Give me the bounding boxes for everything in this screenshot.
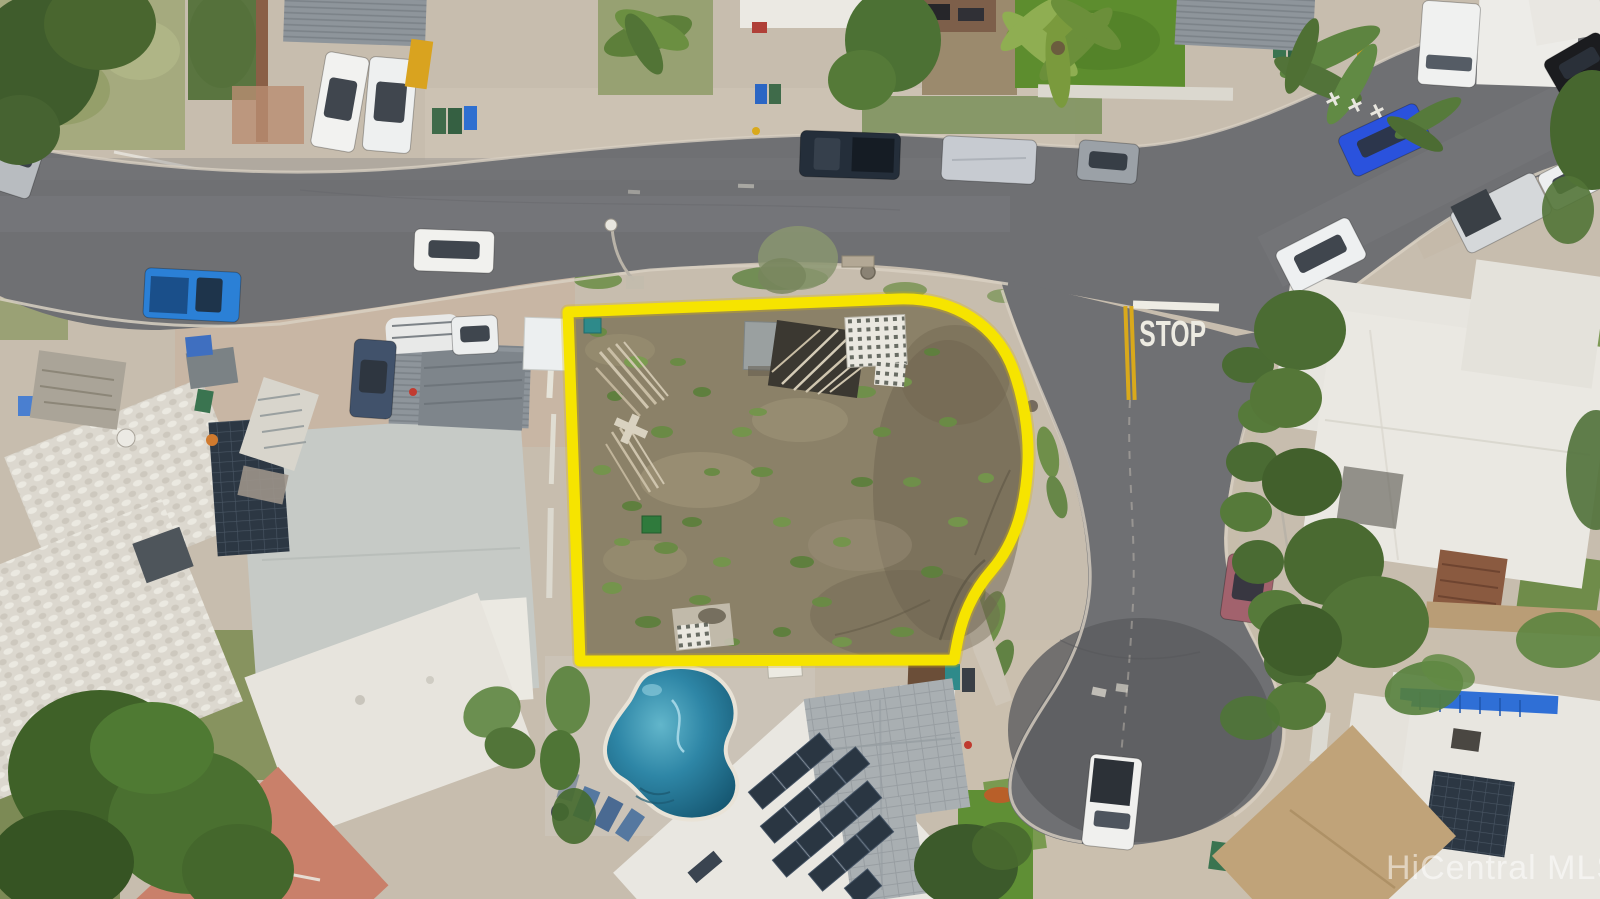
bare-dirt xyxy=(232,86,304,144)
truck-bed xyxy=(851,137,894,172)
weed xyxy=(654,542,678,554)
tree xyxy=(1542,176,1594,244)
weed xyxy=(602,582,622,594)
dirt-patch xyxy=(640,452,760,508)
cooler-box xyxy=(584,318,601,333)
suv-white xyxy=(451,315,499,355)
fire-hydrant xyxy=(964,741,972,749)
block-lattice xyxy=(845,314,908,367)
boat-canopy xyxy=(418,347,526,430)
weed xyxy=(924,348,940,356)
pavement-mark xyxy=(628,190,640,195)
dirt-patch xyxy=(808,519,912,571)
tree xyxy=(972,822,1032,870)
tree xyxy=(1250,368,1322,428)
truck-bed xyxy=(149,276,189,314)
suv-blue xyxy=(349,339,396,420)
storm-grate xyxy=(842,256,874,267)
weed xyxy=(614,538,630,546)
hedge xyxy=(1232,540,1284,584)
palm-trunk xyxy=(1051,41,1065,55)
weed xyxy=(948,517,968,527)
tree xyxy=(1220,696,1280,740)
aerial-photo: STOP HiCentral MLS xyxy=(0,0,1600,899)
trash-bin xyxy=(769,84,781,104)
streetlight-base xyxy=(626,276,644,289)
palm xyxy=(552,788,596,844)
metal-roof xyxy=(1175,0,1316,52)
white-roof xyxy=(1461,259,1600,388)
trash-bin xyxy=(448,108,462,134)
pallet-stack xyxy=(30,350,127,430)
trash-bin xyxy=(755,84,767,104)
vacant-lot xyxy=(546,299,1028,661)
roof-vent xyxy=(1451,728,1482,752)
truck-cab-glass xyxy=(195,277,223,312)
palm-frond xyxy=(1516,612,1600,668)
weed xyxy=(890,627,914,637)
fire-hydrant xyxy=(752,127,760,135)
streetlight-head xyxy=(605,219,617,231)
weed xyxy=(773,517,791,527)
red-object xyxy=(752,22,767,33)
aerial-photo-canvas xyxy=(0,0,1600,899)
weed xyxy=(921,566,943,578)
debris xyxy=(698,608,726,624)
weed xyxy=(635,616,661,628)
weed xyxy=(622,501,642,511)
weed xyxy=(751,467,773,477)
weed xyxy=(689,595,711,605)
weed xyxy=(978,473,994,483)
truck-bed xyxy=(1090,758,1134,806)
green-box xyxy=(642,516,661,533)
weed xyxy=(670,358,686,366)
tree xyxy=(90,702,214,794)
car-gray xyxy=(1076,139,1139,184)
tree xyxy=(1254,290,1346,370)
weed xyxy=(790,556,814,568)
palm xyxy=(546,666,590,734)
truck-cab-glass xyxy=(813,138,840,171)
weed xyxy=(903,477,921,487)
red-marker xyxy=(409,388,417,396)
dirt-patch xyxy=(752,398,848,442)
tree xyxy=(1258,604,1342,676)
weed xyxy=(812,597,832,607)
weed xyxy=(704,468,720,476)
mls-watermark: HiCentral MLS xyxy=(1386,849,1600,888)
block-lattice xyxy=(677,622,711,649)
trash-bin xyxy=(432,108,446,134)
weed xyxy=(732,427,752,437)
hedge xyxy=(1220,492,1272,532)
weed xyxy=(832,637,852,647)
weed xyxy=(693,387,711,397)
stop-road-marking-text: STOP xyxy=(1139,306,1187,364)
weed xyxy=(651,426,673,438)
pavement-mark xyxy=(1116,683,1129,693)
weed xyxy=(833,537,851,547)
roof-vent xyxy=(355,695,365,705)
pool-steps xyxy=(642,684,662,696)
pavement-mark xyxy=(738,184,754,189)
weed xyxy=(773,627,791,637)
weed xyxy=(939,417,957,427)
tarp-pile xyxy=(185,335,213,358)
orange-object xyxy=(206,434,218,446)
tree-sparse xyxy=(758,258,806,294)
weed xyxy=(851,477,873,487)
truck-white xyxy=(1417,0,1481,88)
weed xyxy=(713,557,731,567)
tree xyxy=(1262,448,1342,516)
car-white xyxy=(413,229,494,274)
metal-roof xyxy=(283,0,427,46)
trash-bin xyxy=(464,106,477,130)
weed xyxy=(873,427,891,437)
satellite-dish xyxy=(117,429,135,447)
weed xyxy=(682,517,702,527)
weed xyxy=(593,465,611,475)
block-lattice xyxy=(874,361,906,388)
palm xyxy=(540,730,580,790)
roof-vent xyxy=(426,676,434,684)
patio-furniture xyxy=(958,8,984,21)
tree xyxy=(828,50,896,110)
trash-bin xyxy=(962,668,975,692)
weed xyxy=(749,408,767,416)
